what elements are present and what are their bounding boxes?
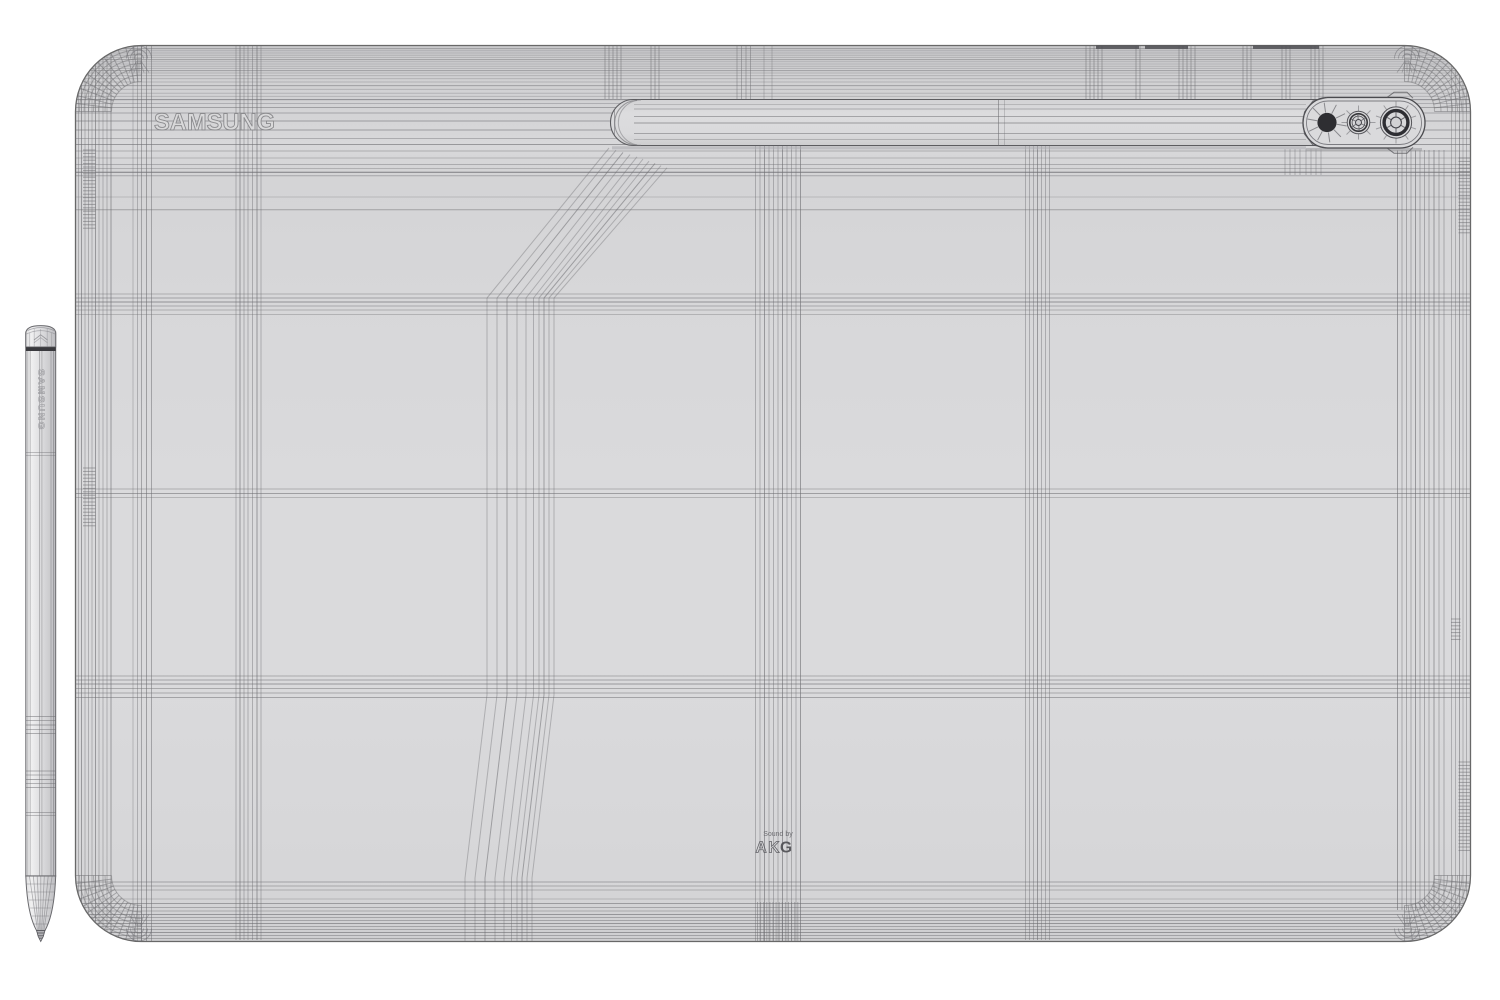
svg-text:G: G <box>780 840 792 857</box>
svg-text:Sound by: Sound by <box>763 831 793 838</box>
svg-text:SAMSUNG: SAMSUNG <box>37 369 46 431</box>
svg-text:SAMSUNG: SAMSUNG <box>154 109 275 136</box>
svg-text:AK: AK <box>756 840 781 857</box>
